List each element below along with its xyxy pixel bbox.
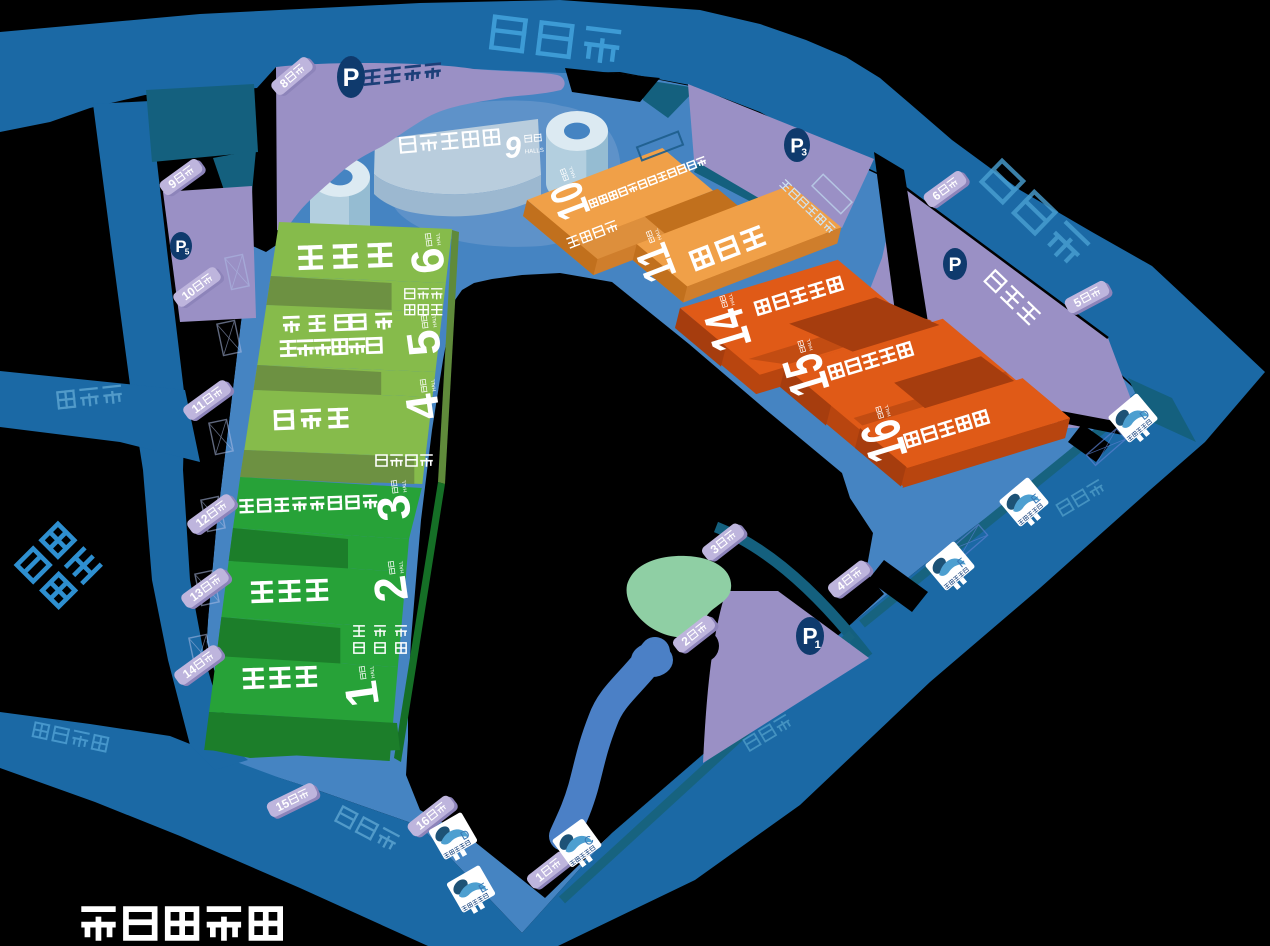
svg-text:P: P	[949, 255, 962, 276]
svg-text:1: 1	[815, 639, 822, 651]
svg-text:3: 3	[801, 148, 807, 159]
svg-text:5: 5	[185, 247, 190, 257]
svg-text:9: 9	[503, 131, 523, 165]
svg-text:P: P	[343, 64, 360, 92]
